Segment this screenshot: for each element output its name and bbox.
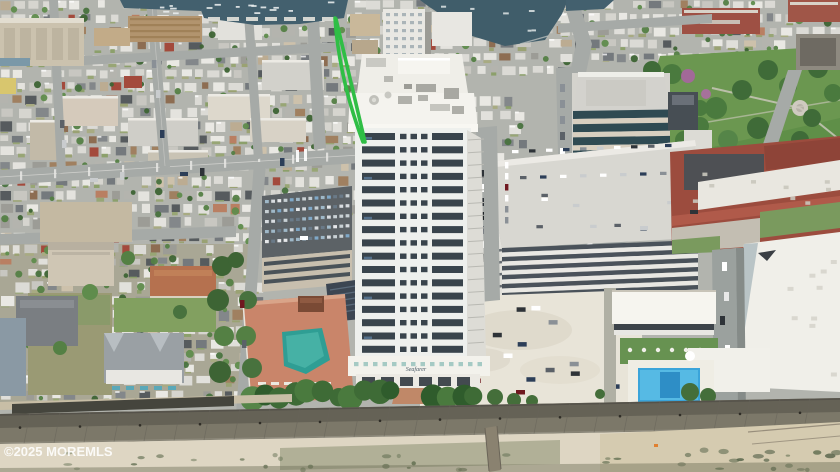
svg-text:©2025 MOREMLS: ©2025 MOREMLS (4, 444, 113, 459)
svg-text:Seafarer: Seafarer (406, 366, 427, 373)
